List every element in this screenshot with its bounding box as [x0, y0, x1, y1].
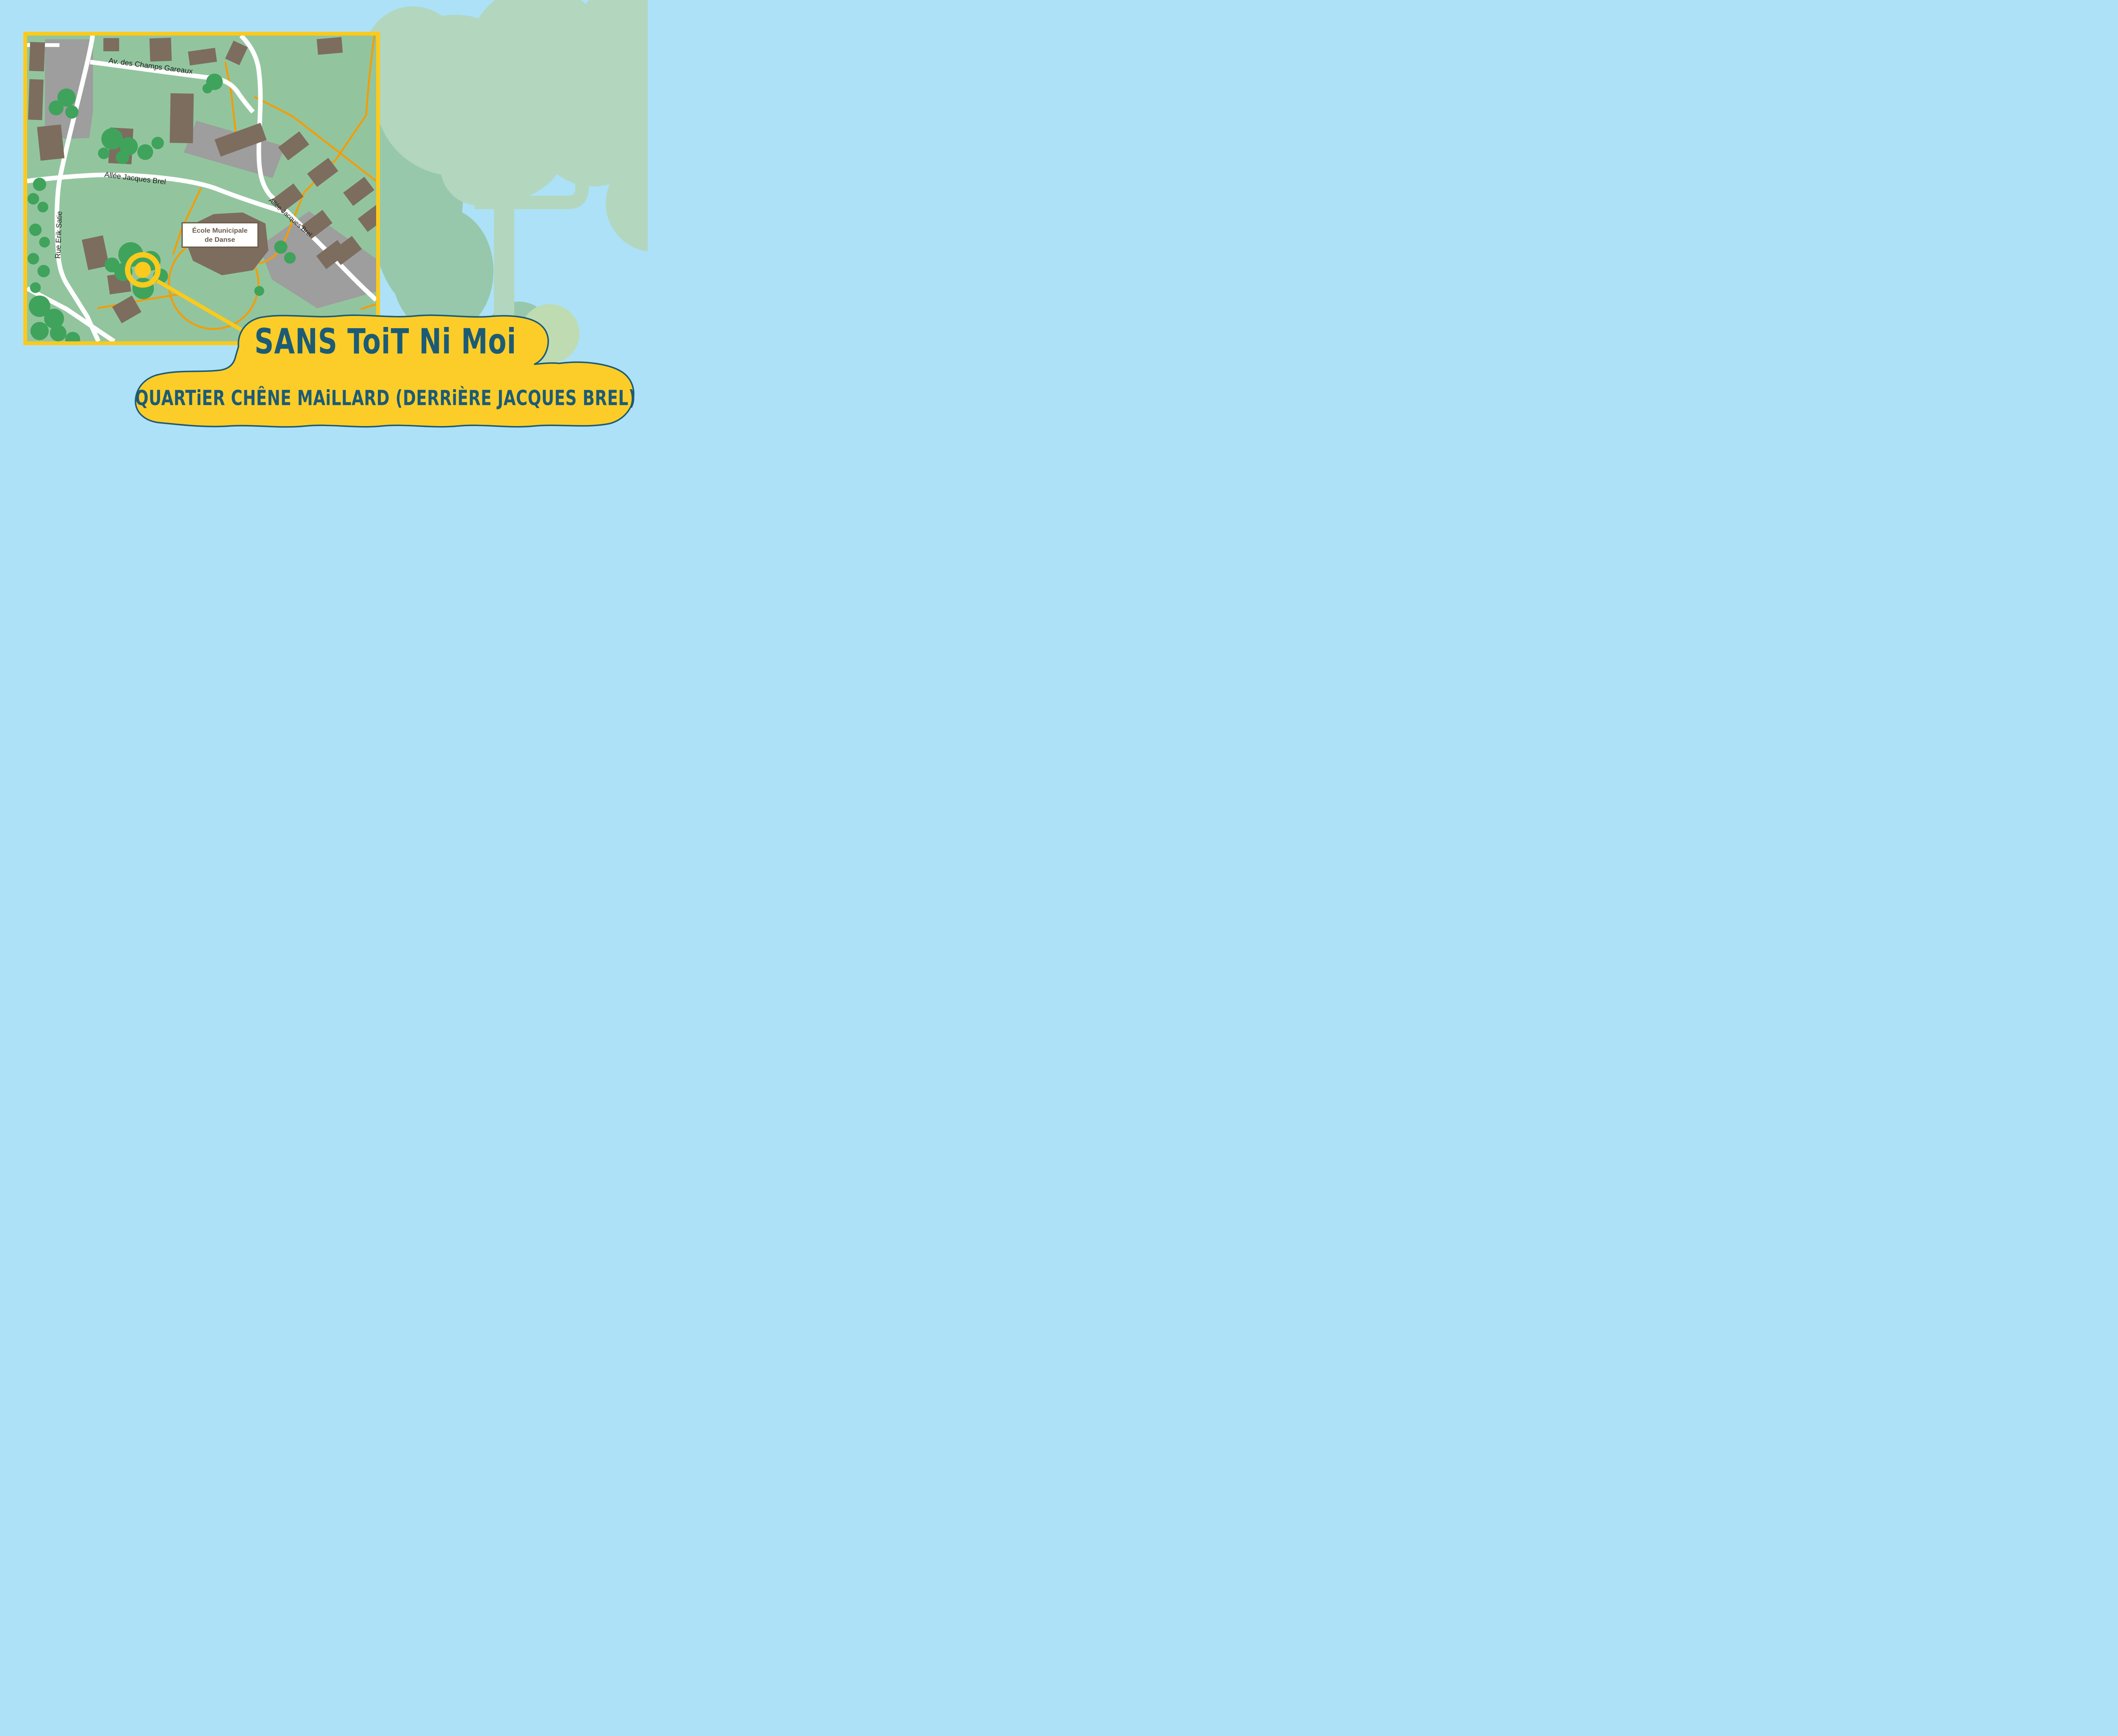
poster-subtitle: QUARTiER CHÊNE MAiLLARD (DERRiÈRE JACQUE…	[145, 372, 627, 424]
poster-canvas: Av. des Champs Gareaux Allée Jacques Bre…	[0, 0, 648, 434]
banner-layer	[0, 0, 648, 434]
poster-title: SANS ToiT Ni Moi	[231, 314, 540, 369]
